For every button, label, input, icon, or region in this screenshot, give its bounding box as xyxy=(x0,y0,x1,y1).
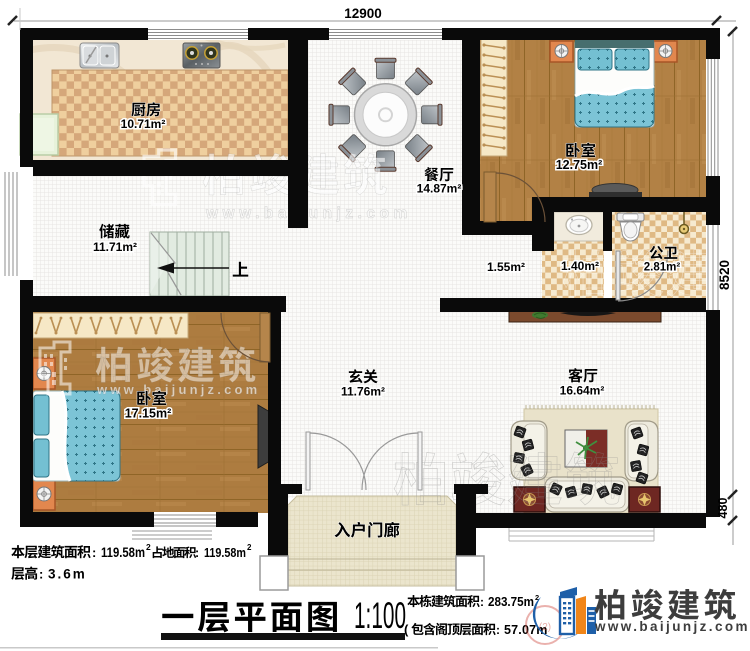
svg-text:3.6m: 3.6m xyxy=(48,567,87,582)
svg-text:10.71m²: 10.71m² xyxy=(121,117,166,131)
svg-text:www.baijunjz.com: www.baijunjz.com xyxy=(96,382,260,397)
svg-text:16.64m²: 16.64m² xyxy=(560,384,605,398)
svg-text:11.76m²: 11.76m² xyxy=(341,385,385,399)
svg-text:1.55m²: 1.55m² xyxy=(487,260,525,274)
svg-text::: : xyxy=(39,567,43,582)
svg-text:1:100: 1:100 xyxy=(354,595,406,636)
svg-text::: : xyxy=(195,546,199,560)
svg-text:www.baijunjz.com: www.baijunjz.com xyxy=(594,619,750,634)
svg-text:www.baijunjz.com: www.baijunjz.com xyxy=(205,205,412,222)
svg-text:2.81m²: 2.81m² xyxy=(644,262,681,274)
svg-text:480: 480 xyxy=(716,498,730,519)
svg-text:1.40m²: 1.40m² xyxy=(561,259,599,273)
svg-text:(: ( xyxy=(404,622,409,637)
svg-text:8520: 8520 xyxy=(717,260,732,290)
svg-text:12.75m²: 12.75m² xyxy=(556,158,603,172)
svg-text:11.71m²: 11.71m² xyxy=(93,240,137,254)
svg-text:119.58m: 119.58m xyxy=(101,545,145,560)
svg-text:2: 2 xyxy=(247,543,252,552)
svg-text:283.75m: 283.75m xyxy=(488,595,534,609)
svg-text:14.87m²: 14.87m² xyxy=(417,182,462,196)
svg-text::: : xyxy=(92,545,96,560)
svg-text::: : xyxy=(496,623,500,637)
svg-text:2: 2 xyxy=(146,542,151,552)
svg-text:119.58m: 119.58m xyxy=(204,546,246,560)
svg-text:12900: 12900 xyxy=(344,6,382,21)
svg-text:17.15m²: 17.15m² xyxy=(125,407,172,421)
svg-text::: : xyxy=(480,595,484,609)
